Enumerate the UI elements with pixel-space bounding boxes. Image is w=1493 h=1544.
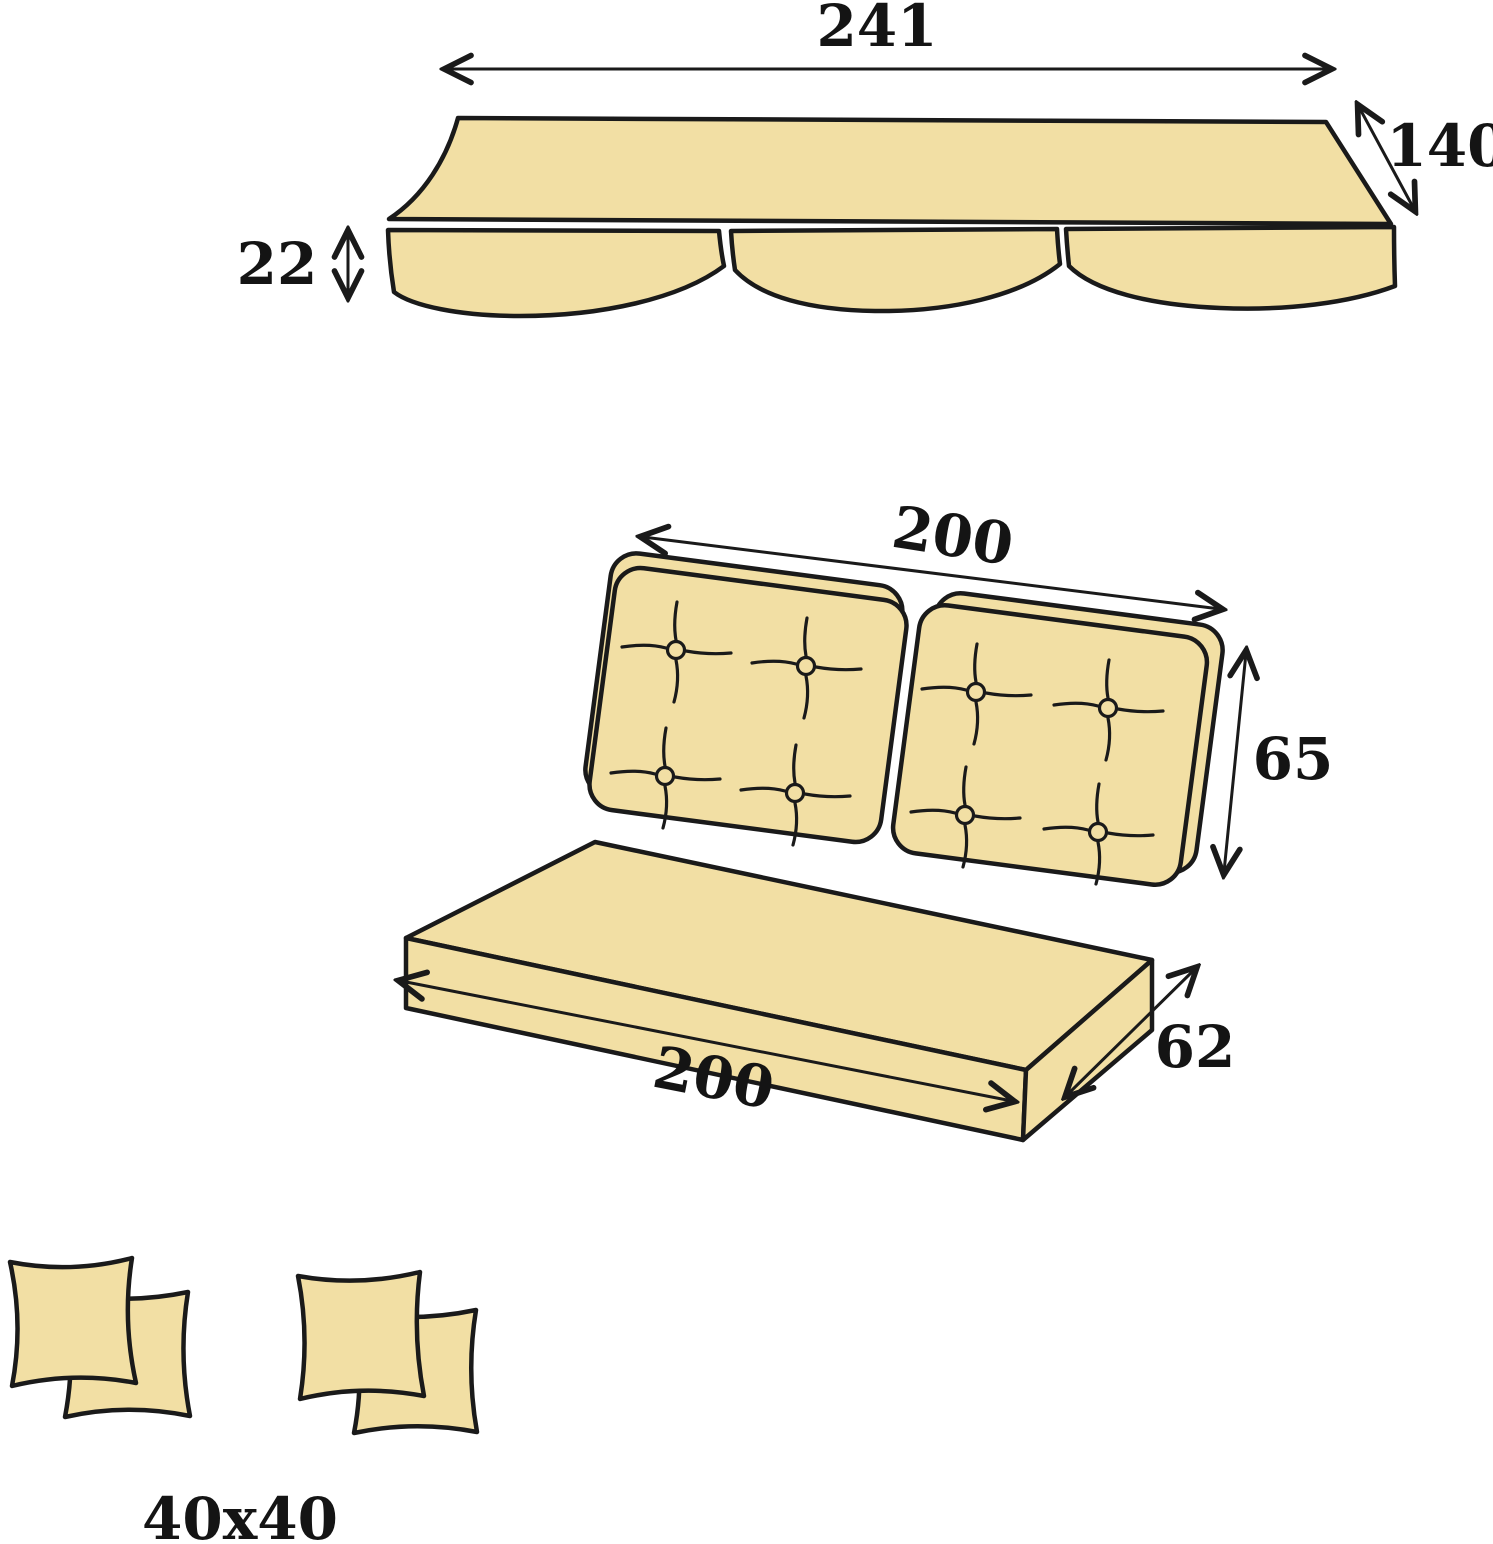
seat-cushion: [406, 842, 1152, 1140]
seat-depth-label: 62: [1155, 1013, 1236, 1081]
canopy-depth-label: 140: [1386, 112, 1493, 180]
backrest-left-cushion: [580, 550, 911, 845]
valance-drop-label: 22: [237, 230, 318, 298]
dimension-diagram: 241 140 22 200 65 200 62: [0, 0, 1493, 1544]
pillow-pair-left: [10, 1258, 190, 1417]
canopy-valance-left: [388, 230, 724, 316]
canopy-width-label: 241: [816, 0, 937, 60]
backrest-left-cushion-front: [586, 565, 909, 845]
canopy-valance-middle: [731, 229, 1060, 311]
pillow-size-label: 40x40: [142, 1485, 338, 1544]
dimension-diagram-page: 241 140 22 200 65 200 62: [0, 0, 1493, 1544]
backrest-right-cushion-front: [890, 602, 1210, 888]
canopy-valance-right: [1066, 227, 1395, 309]
backrest-right-cushion: [890, 588, 1226, 889]
backrest-height-arrow: [1224, 653, 1246, 872]
backrest-width-label: 200: [888, 493, 1018, 579]
canopy-panel: [389, 118, 1391, 224]
pillow-front: [10, 1258, 136, 1386]
backrest-height-label: 65: [1253, 725, 1334, 793]
pillow-front: [298, 1272, 424, 1399]
pillow-pair-right: [298, 1272, 477, 1433]
